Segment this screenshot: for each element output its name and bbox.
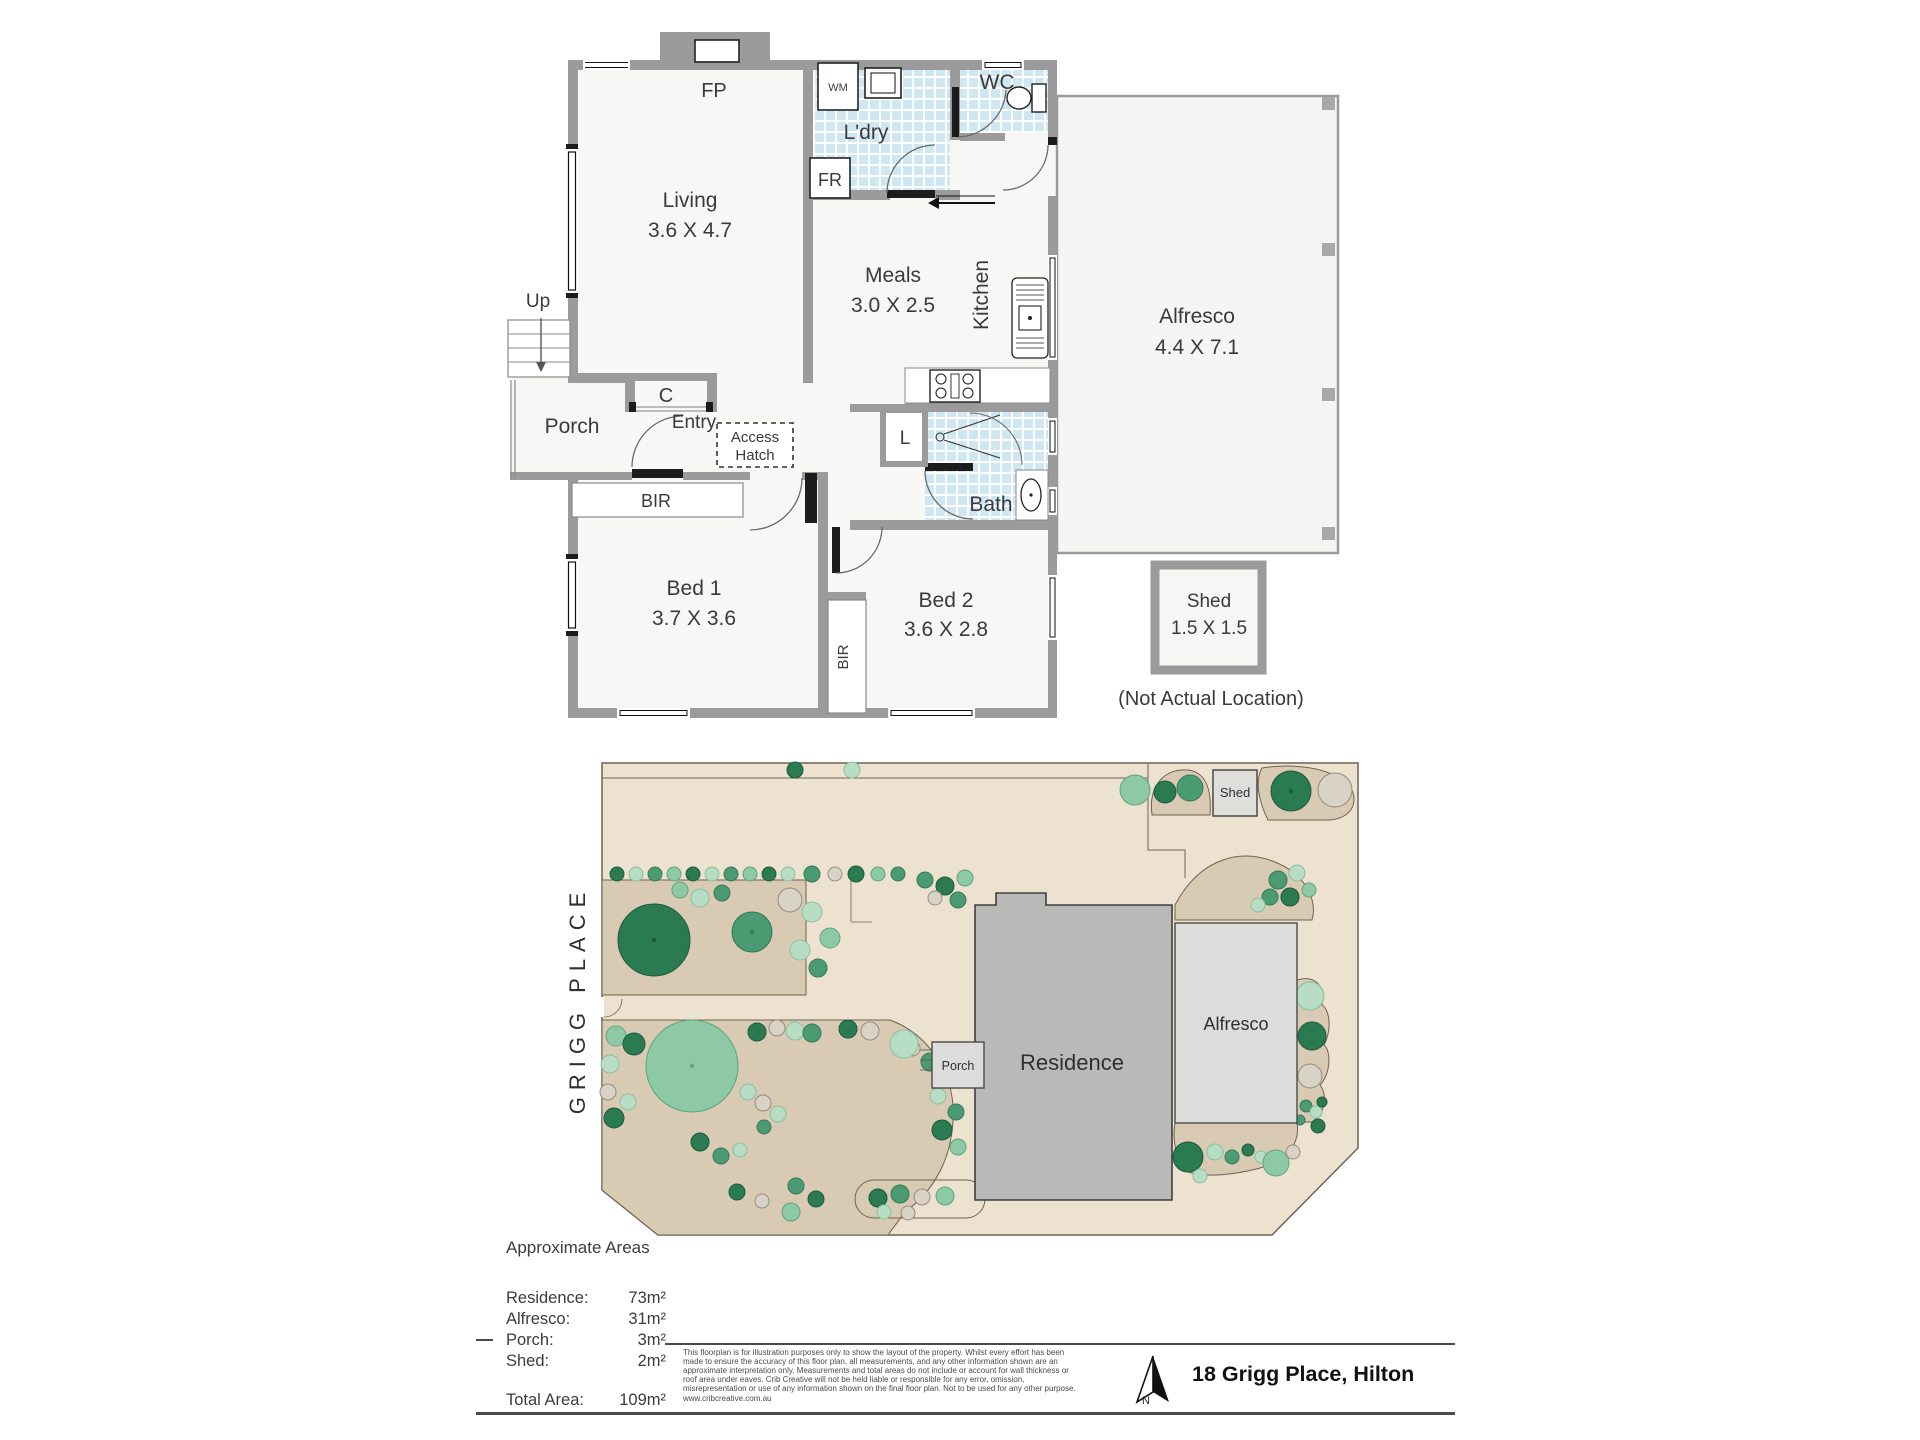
label-shed: Shed — [1187, 591, 1231, 612]
site-label-shed: Shed — [1220, 785, 1250, 800]
area-label: Shed: — [506, 1352, 549, 1373]
area-label: Residence: — [506, 1289, 589, 1310]
label-meals-dims: 3.0 X 2.5 — [851, 294, 935, 317]
label-up: Up — [526, 291, 550, 312]
porch-row-dash — [476, 1339, 493, 1341]
label-bed1: Bed 1 — [667, 577, 722, 600]
floor-plan: Living 3.6 X 4.7 FP L'dry WM FR WC Meals… — [500, 20, 1380, 735]
label-fp: FP — [701, 80, 727, 102]
label-shed-dims: 1.5 X 1.5 — [1171, 618, 1247, 639]
label-bed1-dims: 3.7 X 3.6 — [652, 607, 736, 630]
area-row-shed: Shed: 2m² — [506, 1352, 666, 1373]
total-value: 109m² — [619, 1391, 666, 1412]
label-laundry: L'dry — [844, 121, 889, 144]
total-label: Total Area: — [506, 1391, 584, 1412]
label-alfresco: Alfresco — [1159, 305, 1235, 328]
area-row-residence: Residence: 73m² — [506, 1289, 666, 1310]
disclaimer: This floorplan is for illustration purpo… — [683, 1348, 1079, 1403]
area-value: 2m² — [638, 1352, 666, 1373]
label-bath: Bath — [969, 493, 1012, 516]
label-bir1: BIR — [641, 491, 671, 511]
street-name: GRIGG PLACE — [565, 886, 590, 1115]
sink-icon — [1012, 278, 1048, 358]
disclaimer-website: www.cribcreative.com.au — [683, 1394, 1079, 1403]
property-address: 18 Grigg Place, Hilton — [1192, 1362, 1414, 1387]
site-plan: GRIGG PLACE Residence Alfresco Porch She… — [560, 755, 1390, 1255]
label-bed2: Bed 2 — [919, 589, 974, 612]
label-fr: FR — [818, 170, 842, 190]
label-bed2-dims: 3.6 X 2.8 — [904, 618, 988, 641]
area-value: 73m² — [628, 1289, 666, 1310]
north-arrow-icon: N — [1131, 1354, 1175, 1406]
laundry-trough-icon — [865, 68, 901, 98]
area-row-porch: Porch: 3m² — [506, 1331, 666, 1352]
label-linen: L — [900, 428, 911, 449]
fireplace-icon — [695, 40, 739, 62]
site-label-residence: Residence — [1020, 1050, 1124, 1075]
label-living: Living — [663, 189, 718, 212]
label-wc: WC — [980, 71, 1015, 94]
site-label-porch: Porch — [942, 1059, 975, 1073]
area-value: 3m² — [638, 1331, 666, 1352]
label-kitchen: Kitchen — [970, 260, 993, 330]
divider-bottom-line — [476, 1412, 1455, 1415]
label-shed-note: (Not Actual Location) — [1118, 688, 1304, 710]
label-living-dims: 3.6 X 4.7 — [648, 219, 732, 242]
label-entry: Entry — [672, 412, 717, 433]
label-hatch: Hatch — [735, 447, 774, 464]
north-label: N — [1142, 1395, 1150, 1406]
areas-title: Approximate Areas — [506, 1238, 650, 1258]
area-value: 31m² — [628, 1310, 666, 1331]
stove-icon — [930, 370, 980, 402]
area-label: Porch: — [506, 1331, 554, 1352]
area-row-total: Total Area: 109m² — [506, 1391, 666, 1412]
basin-icon — [1016, 470, 1048, 520]
label-wm: WM — [828, 82, 848, 94]
stairs-icon — [508, 318, 570, 377]
label-meals: Meals — [865, 264, 921, 287]
site-label-alfresco: Alfresco — [1203, 1014, 1268, 1034]
area-row-alfresco: Alfresco: 31m² — [506, 1310, 666, 1331]
label-c: C — [659, 385, 673, 407]
floorplan-page: Living 3.6 X 4.7 FP L'dry WM FR WC Meals… — [0, 0, 1920, 1440]
label-bir2: BIR — [835, 644, 852, 669]
area-label: Alfresco: — [506, 1310, 570, 1331]
label-access: Access — [731, 429, 779, 446]
divider-top-line — [665, 1343, 1455, 1345]
label-porch: Porch — [545, 415, 600, 438]
label-alfresco-dims: 4.4 X 7.1 — [1155, 336, 1239, 359]
disclaimer-text: This floorplan is for illustration purpo… — [683, 1348, 1076, 1393]
site-residence — [975, 893, 1172, 1200]
